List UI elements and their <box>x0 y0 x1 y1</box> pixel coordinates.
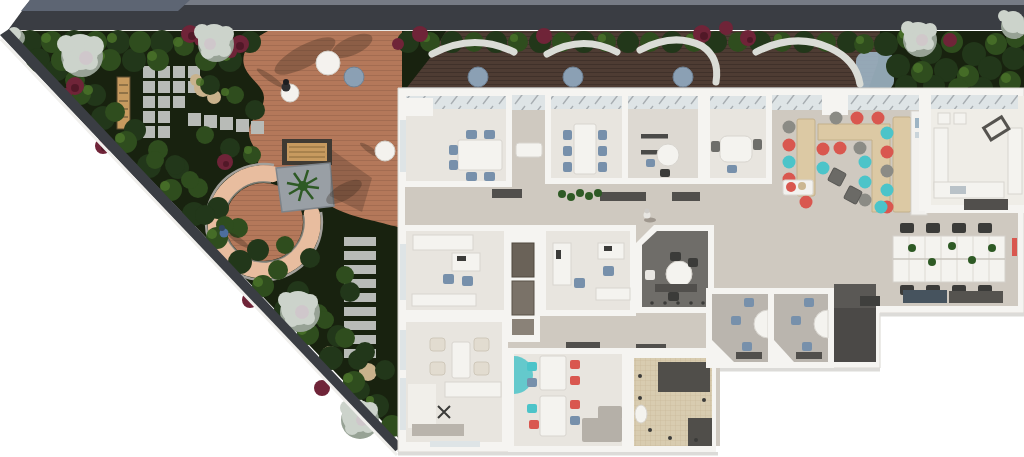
palm-crown <box>298 181 308 191</box>
credenza <box>949 291 1003 303</box>
conference-table <box>458 140 502 170</box>
chair <box>753 139 762 150</box>
cabinet <box>413 235 473 250</box>
cabinet <box>860 296 880 306</box>
locker-wall <box>508 225 540 342</box>
bench <box>600 192 646 201</box>
locker <box>512 319 534 335</box>
meeting-room-3 <box>622 90 704 184</box>
kitchen-pantry <box>919 90 1024 213</box>
bench <box>672 192 700 201</box>
credenza <box>903 290 947 303</box>
conference-table <box>574 124 596 174</box>
wall-stub <box>405 98 433 116</box>
side-window <box>400 330 406 370</box>
shower-unit <box>688 418 712 446</box>
corridor-mat <box>655 284 697 292</box>
neighbor-roof-slab <box>21 0 190 11</box>
console-table <box>516 143 542 157</box>
window-light <box>408 384 436 428</box>
facade-niche <box>516 143 542 157</box>
roof-edge-highlight <box>182 0 1024 5</box>
bench <box>736 352 762 359</box>
bench <box>412 424 464 436</box>
staff-cafeteria <box>508 348 628 452</box>
chair <box>443 274 454 284</box>
bench <box>796 352 822 359</box>
bench <box>492 189 522 198</box>
cafeteria-table <box>540 396 566 436</box>
office-2 <box>540 225 636 316</box>
floor-plan-render <box>0 0 1024 457</box>
phone-booth-2 <box>768 288 834 368</box>
floor-plan-svg <box>0 0 1024 457</box>
monitor <box>556 250 561 259</box>
side-window <box>400 120 406 172</box>
toilet <box>635 405 647 423</box>
chair <box>645 270 655 280</box>
phone-booth-1 <box>706 288 774 368</box>
restroom <box>628 348 716 452</box>
locker <box>512 243 534 277</box>
credenza <box>596 288 630 300</box>
chair <box>574 278 585 288</box>
building <box>398 88 1024 456</box>
kitchen-mat <box>964 199 1008 210</box>
chair <box>727 165 737 173</box>
sink <box>950 186 966 194</box>
palm-planter <box>276 163 334 212</box>
round-table <box>657 144 679 166</box>
chair <box>462 276 473 286</box>
cafeteria-table <box>540 356 566 390</box>
meeting-room-1 <box>400 90 512 187</box>
meeting-room-2 <box>545 90 628 184</box>
monitor <box>604 246 612 251</box>
vanity-counter <box>658 362 710 392</box>
coffee-table <box>452 342 470 378</box>
stool <box>786 182 796 192</box>
focus-room <box>636 225 714 313</box>
monitor <box>457 256 466 261</box>
credenza-shelf <box>641 134 668 139</box>
storage-room <box>834 284 876 362</box>
stool <box>798 182 806 190</box>
side-window <box>400 244 406 300</box>
table <box>720 136 752 162</box>
sideboard <box>445 382 501 397</box>
side-window <box>400 378 406 430</box>
chair <box>646 159 655 167</box>
desk <box>452 253 480 271</box>
window <box>430 441 480 447</box>
lounge <box>400 316 508 448</box>
meeting-room-4 <box>704 90 772 184</box>
locker <box>512 281 534 315</box>
end-chair <box>1012 238 1017 256</box>
credenza <box>412 294 476 306</box>
chair <box>711 141 720 152</box>
chair <box>603 266 614 276</box>
chair <box>660 169 670 177</box>
pergola-bench <box>282 139 332 165</box>
desk <box>553 243 571 285</box>
office-1 <box>400 225 510 316</box>
